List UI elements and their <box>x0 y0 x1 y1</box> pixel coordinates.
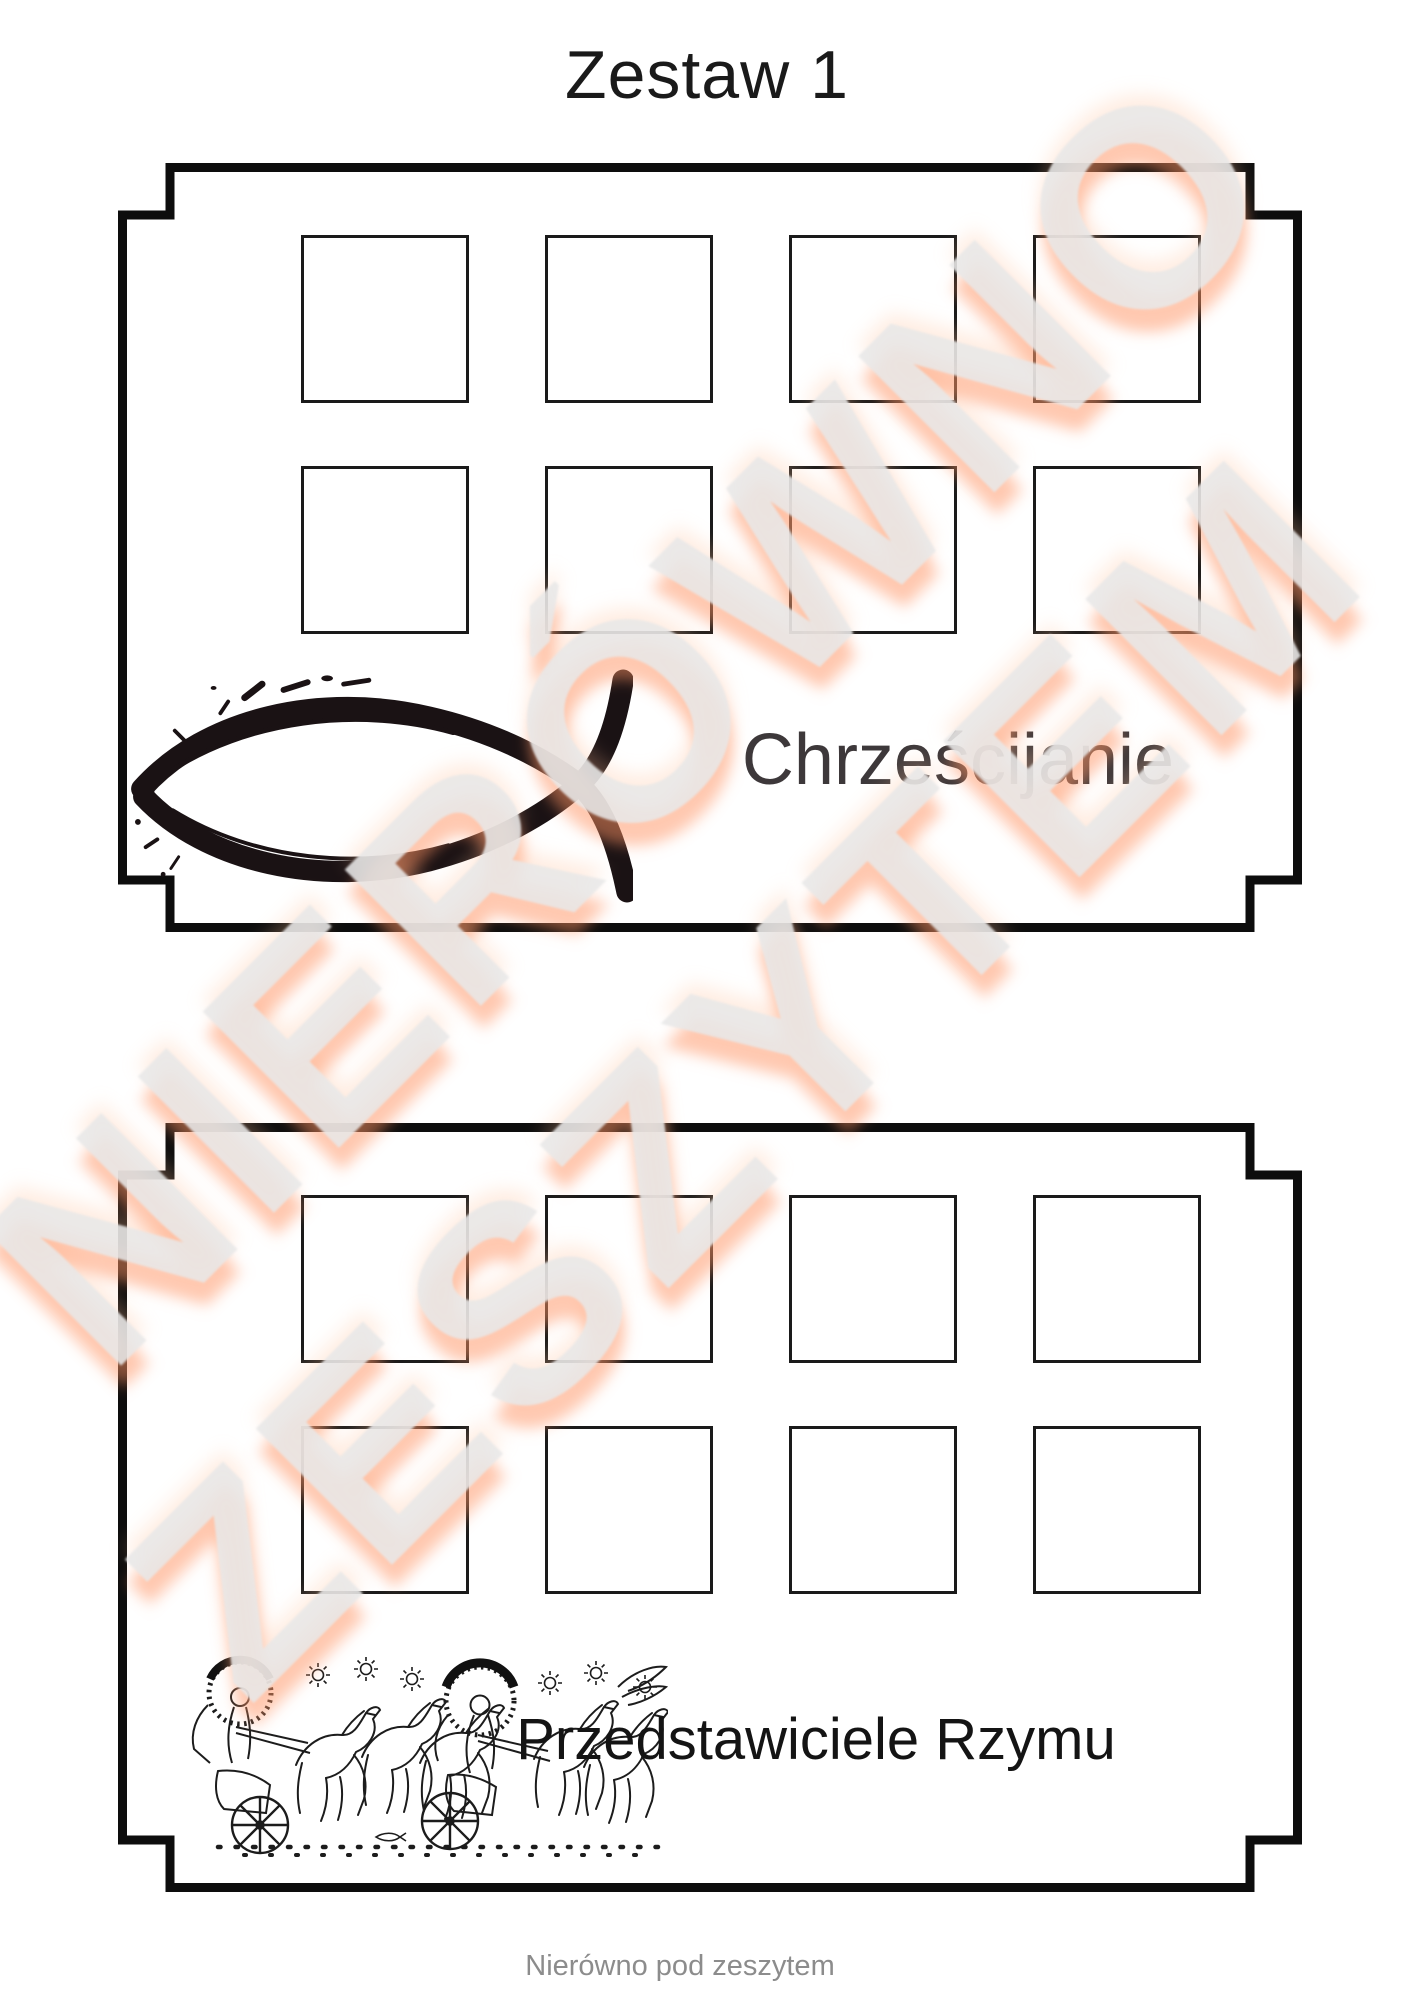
empty-image-slot <box>545 466 713 634</box>
empty-image-slot <box>1033 1195 1201 1363</box>
worksheet-page: Zestaw 1 <box>0 0 1414 2000</box>
empty-image-slot <box>301 1195 469 1363</box>
empty-image-slot <box>1033 466 1201 634</box>
empty-image-slot <box>789 1195 957 1363</box>
empty-image-slot <box>301 235 469 403</box>
empty-image-slot <box>545 1195 713 1363</box>
card-label: Przedstawiciele Rzymu <box>506 1701 1126 1779</box>
empty-image-slot <box>545 235 713 403</box>
ichthys-fish-illustration <box>128 655 633 917</box>
category-card-rome: Przedstawiciele Rzymu <box>118 1123 1302 1892</box>
empty-image-slot <box>789 466 957 634</box>
page-title: Zestaw 1 <box>0 36 1414 114</box>
category-card-christians: Chrześcijanie <box>118 163 1302 932</box>
empty-image-slot <box>1033 235 1201 403</box>
slot-grid <box>301 235 1201 634</box>
empty-image-slot <box>301 1426 469 1594</box>
footer-brand: Nierówno pod zeszytem <box>350 1950 1010 1983</box>
slot-grid <box>301 1195 1201 1594</box>
card-label: Chrześcijanie <box>638 719 1278 801</box>
empty-image-slot <box>789 1426 957 1594</box>
empty-image-slot <box>301 466 469 634</box>
empty-image-slot <box>1033 1426 1201 1594</box>
empty-image-slot <box>789 235 957 403</box>
empty-image-slot <box>545 1426 713 1594</box>
